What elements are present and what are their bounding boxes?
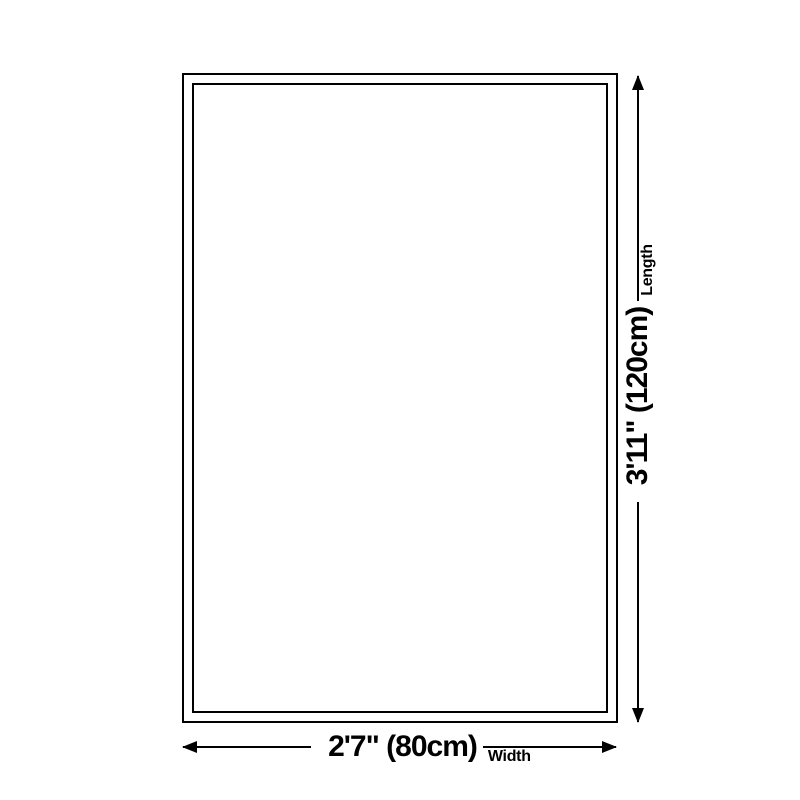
product-outline: [182, 73, 618, 723]
length-axis-label: Length: [639, 296, 657, 301]
length-dimension-arrow: 3'11" (120cm) Length: [608, 75, 668, 723]
width-value: 2'7" (80cm): [311, 730, 483, 764]
product-inner-border: [192, 83, 608, 713]
width-label: 2'7" (80cm) Width: [182, 717, 617, 777]
width-dimension-arrow: 2'7" (80cm) Width: [182, 717, 617, 777]
length-label: 3'11" (120cm) Length: [608, 75, 668, 723]
dimension-diagram: 3'11" (120cm) Length 2'7" (80cm) Width: [0, 0, 800, 800]
width-axis-label: Width: [483, 748, 488, 766]
length-value: 3'11" (120cm): [621, 301, 655, 502]
